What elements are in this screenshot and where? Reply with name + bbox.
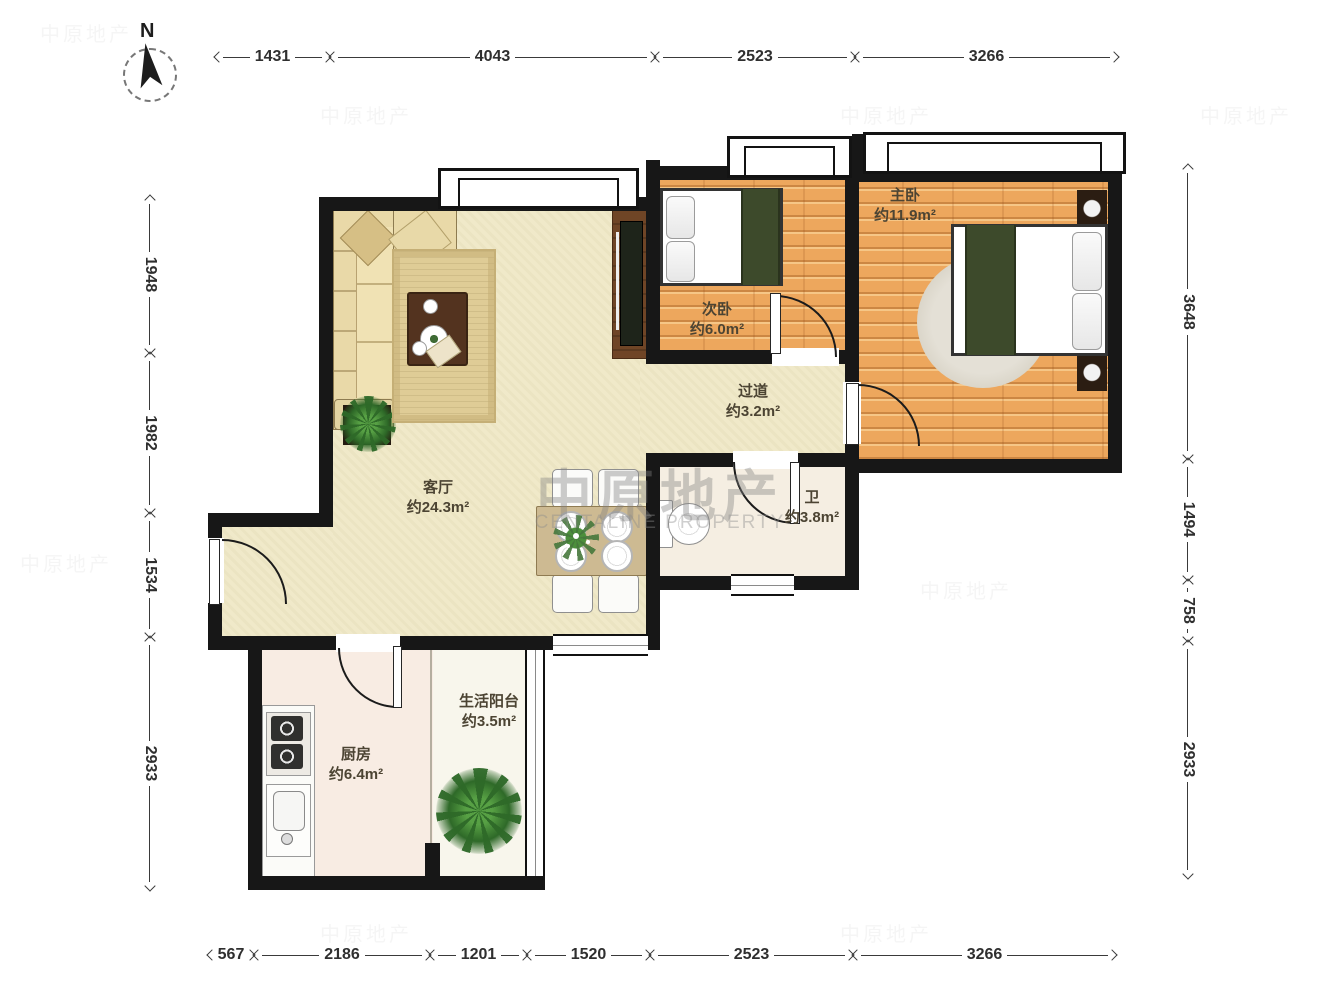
wall-divider-stub: [425, 843, 440, 877]
dining-chair: [598, 574, 639, 613]
wall-living-left: [319, 197, 333, 527]
bay-window-inner-frame: [887, 142, 1102, 171]
watermark-tile: 中原地产: [320, 918, 412, 947]
partition-kitchen-balcony: [430, 650, 432, 843]
dimension-top: 3266: [855, 49, 1118, 65]
room-area: 约3.5m²: [434, 712, 544, 732]
wall-entry-left: [208, 603, 222, 650]
dimension-bottom: 1520: [527, 947, 650, 963]
master-bedroom-pillow: [1072, 232, 1102, 291]
north-label: N: [140, 20, 154, 43]
room-area: 约11.9m²: [855, 206, 955, 226]
watermark-tile: 中原地产: [20, 548, 112, 577]
window-living-south: [553, 634, 648, 656]
room-name: 客厅: [388, 478, 488, 498]
dimension-top: 4043: [330, 49, 655, 65]
dimension-right: 3648: [1180, 165, 1196, 459]
dimension-bottom: 2523: [650, 947, 853, 963]
wall-hall-master: [845, 350, 859, 382]
room-name: 厨房: [306, 745, 406, 765]
bay-window-master-bedroom: [863, 132, 1126, 174]
dining-chair: [552, 574, 593, 613]
sofa-plant: [340, 396, 396, 452]
dimension-right: 1494: [1180, 459, 1196, 580]
dimension-right: 2933: [1180, 641, 1196, 878]
window-bathroom: [731, 574, 794, 596]
room-label-balcony: 生活阳台 约3.5m²: [434, 692, 544, 732]
nightstand: [1077, 354, 1107, 391]
wall-kitchen-left: [248, 636, 262, 890]
sink-basin: [273, 791, 305, 831]
dimension-left: 1534: [142, 513, 158, 637]
balcony-plant: [436, 768, 522, 854]
second-bedroom-pillow: [666, 241, 695, 282]
watermark-en: CENTALINE PROPERTY: [510, 512, 810, 534]
room-label-living: 客厅 约24.3m²: [388, 478, 488, 518]
dimension-bottom: 1201: [430, 947, 527, 963]
room-area: 约6.0m²: [667, 320, 767, 340]
stove-burner: [271, 716, 303, 741]
dining-plate: [601, 540, 633, 572]
watermark-tile: 中原地产: [320, 100, 412, 129]
second-bedroom-pillow: [666, 196, 695, 239]
bay-window-second-bedroom: [727, 136, 852, 178]
tv-screen: [620, 221, 643, 346]
room-name: 过道: [703, 382, 803, 402]
watermark-tile: 中原地产: [920, 575, 1012, 604]
second-bedroom-blanket: [741, 189, 780, 285]
sink-faucet: [281, 833, 293, 845]
room-name: 次卧: [667, 300, 767, 320]
wall-entry-left: [208, 513, 222, 538]
wall-entry-jut: [208, 513, 333, 527]
wall-master-bedroom-right: [1108, 168, 1122, 473]
master-bedroom-pillow: [1072, 293, 1102, 350]
room-area: 约24.3m²: [388, 498, 488, 518]
wall-second-bedroom-bottom: [646, 350, 772, 364]
north-arrow-icon: [123, 48, 177, 102]
dimension-left: 2933: [142, 637, 158, 890]
wall-living-bottom: [208, 636, 336, 650]
wall-living-second-bedroom: [646, 160, 660, 364]
floorplan-canvas: 主卧 约11.9m² 次卧 约6.0m² 过道 约3.2m² 客厅 约24.3m…: [0, 0, 1333, 1000]
dimension-left: 1982: [142, 353, 158, 513]
dimension-right: 758: [1180, 580, 1196, 641]
coffee-table-cup: [412, 341, 427, 356]
room-label-hallway: 过道 约3.2m²: [703, 382, 803, 422]
door-second-bedroom-leaf: [770, 293, 781, 354]
door-entry-leaf: [209, 539, 220, 605]
bay-window-inner-frame: [458, 178, 619, 206]
room-name: 生活阳台: [434, 692, 544, 712]
dimension-bottom: 567: [208, 947, 254, 963]
room-area: 约6.4m²: [306, 765, 406, 785]
watermark-tile: 中原地产: [1200, 100, 1292, 129]
nightstand: [1077, 190, 1107, 227]
coffee-table-cup: [423, 299, 438, 314]
window-balcony-side: [525, 650, 545, 876]
tv-screen-edge: [616, 232, 619, 330]
wall-balcony-corner-stub: [527, 636, 545, 650]
room-label-second: 次卧 约6.0m²: [667, 300, 767, 340]
room-name: 主卧: [855, 186, 955, 206]
wall-kitchen-balcony-bottom: [248, 876, 545, 890]
bay-window-inner-frame: [744, 146, 835, 175]
stove-burner: [271, 744, 303, 769]
room-label-kitchen: 厨房 约6.4m²: [306, 745, 406, 785]
watermark-tile: 中原地产: [40, 18, 132, 47]
dimension-top: 2523: [655, 49, 855, 65]
watermark-tile: 中原地产: [840, 100, 932, 129]
bay-window-living: [438, 168, 639, 209]
door-kitchen-leaf: [393, 646, 402, 708]
door-master-bedroom-leaf: [846, 383, 859, 445]
room-label-master: 主卧 约11.9m²: [855, 186, 955, 226]
dimension-top: 1431: [215, 49, 330, 65]
dimension-bottom: 2186: [254, 947, 430, 963]
watermark-tile: 中原地产: [840, 918, 932, 947]
wall-master-bedroom-bottom: [845, 459, 1122, 473]
dimension-left: 1948: [142, 196, 158, 353]
master-bedroom-blanket: [965, 225, 1016, 355]
room-area: 约3.2m²: [703, 402, 803, 422]
dimension-bottom: 3266: [853, 947, 1116, 963]
